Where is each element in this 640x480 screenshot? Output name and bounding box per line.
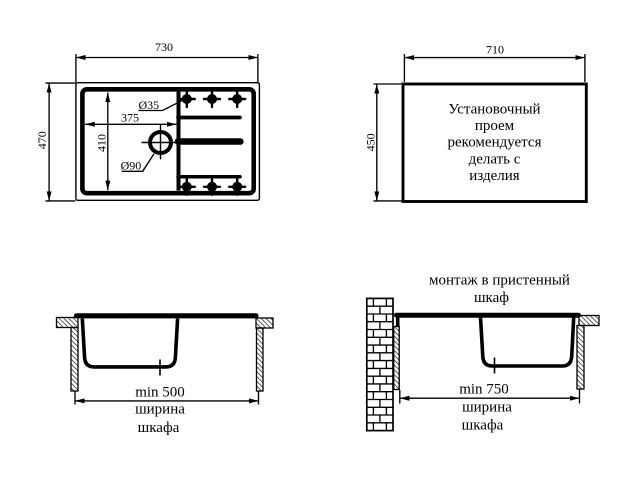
svg-text:шкафа: шкафа bbox=[462, 418, 504, 434]
svg-text:375: 375 bbox=[121, 110, 139, 124]
svg-text:делать с: делать с bbox=[469, 152, 521, 168]
svg-text:рекомендуется: рекомендуется bbox=[448, 135, 542, 151]
svg-text:710: 710 bbox=[486, 43, 504, 57]
svg-text:410: 410 bbox=[95, 134, 109, 152]
svg-text:450: 450 bbox=[364, 133, 378, 151]
svg-text:min 750: min 750 bbox=[459, 381, 509, 397]
svg-text:min 500: min 500 bbox=[135, 385, 185, 401]
svg-text:шкаф: шкаф bbox=[474, 290, 509, 306]
svg-text:Установочный: Установочный bbox=[448, 102, 540, 118]
svg-text:проем: проем bbox=[475, 118, 515, 134]
svg-text:ширина: ширина bbox=[462, 400, 512, 416]
svg-text:ширина: ширина bbox=[135, 402, 185, 418]
svg-text:шкафа: шкафа bbox=[138, 420, 180, 436]
svg-text:Ø35: Ø35 bbox=[138, 98, 159, 112]
svg-text:Ø90: Ø90 bbox=[121, 159, 142, 173]
svg-text:изделия: изделия bbox=[469, 168, 519, 184]
svg-text:730: 730 bbox=[155, 40, 173, 54]
svg-text:470: 470 bbox=[35, 131, 49, 149]
svg-text:монтаж в пристенный: монтаж в пристенный bbox=[429, 273, 570, 289]
